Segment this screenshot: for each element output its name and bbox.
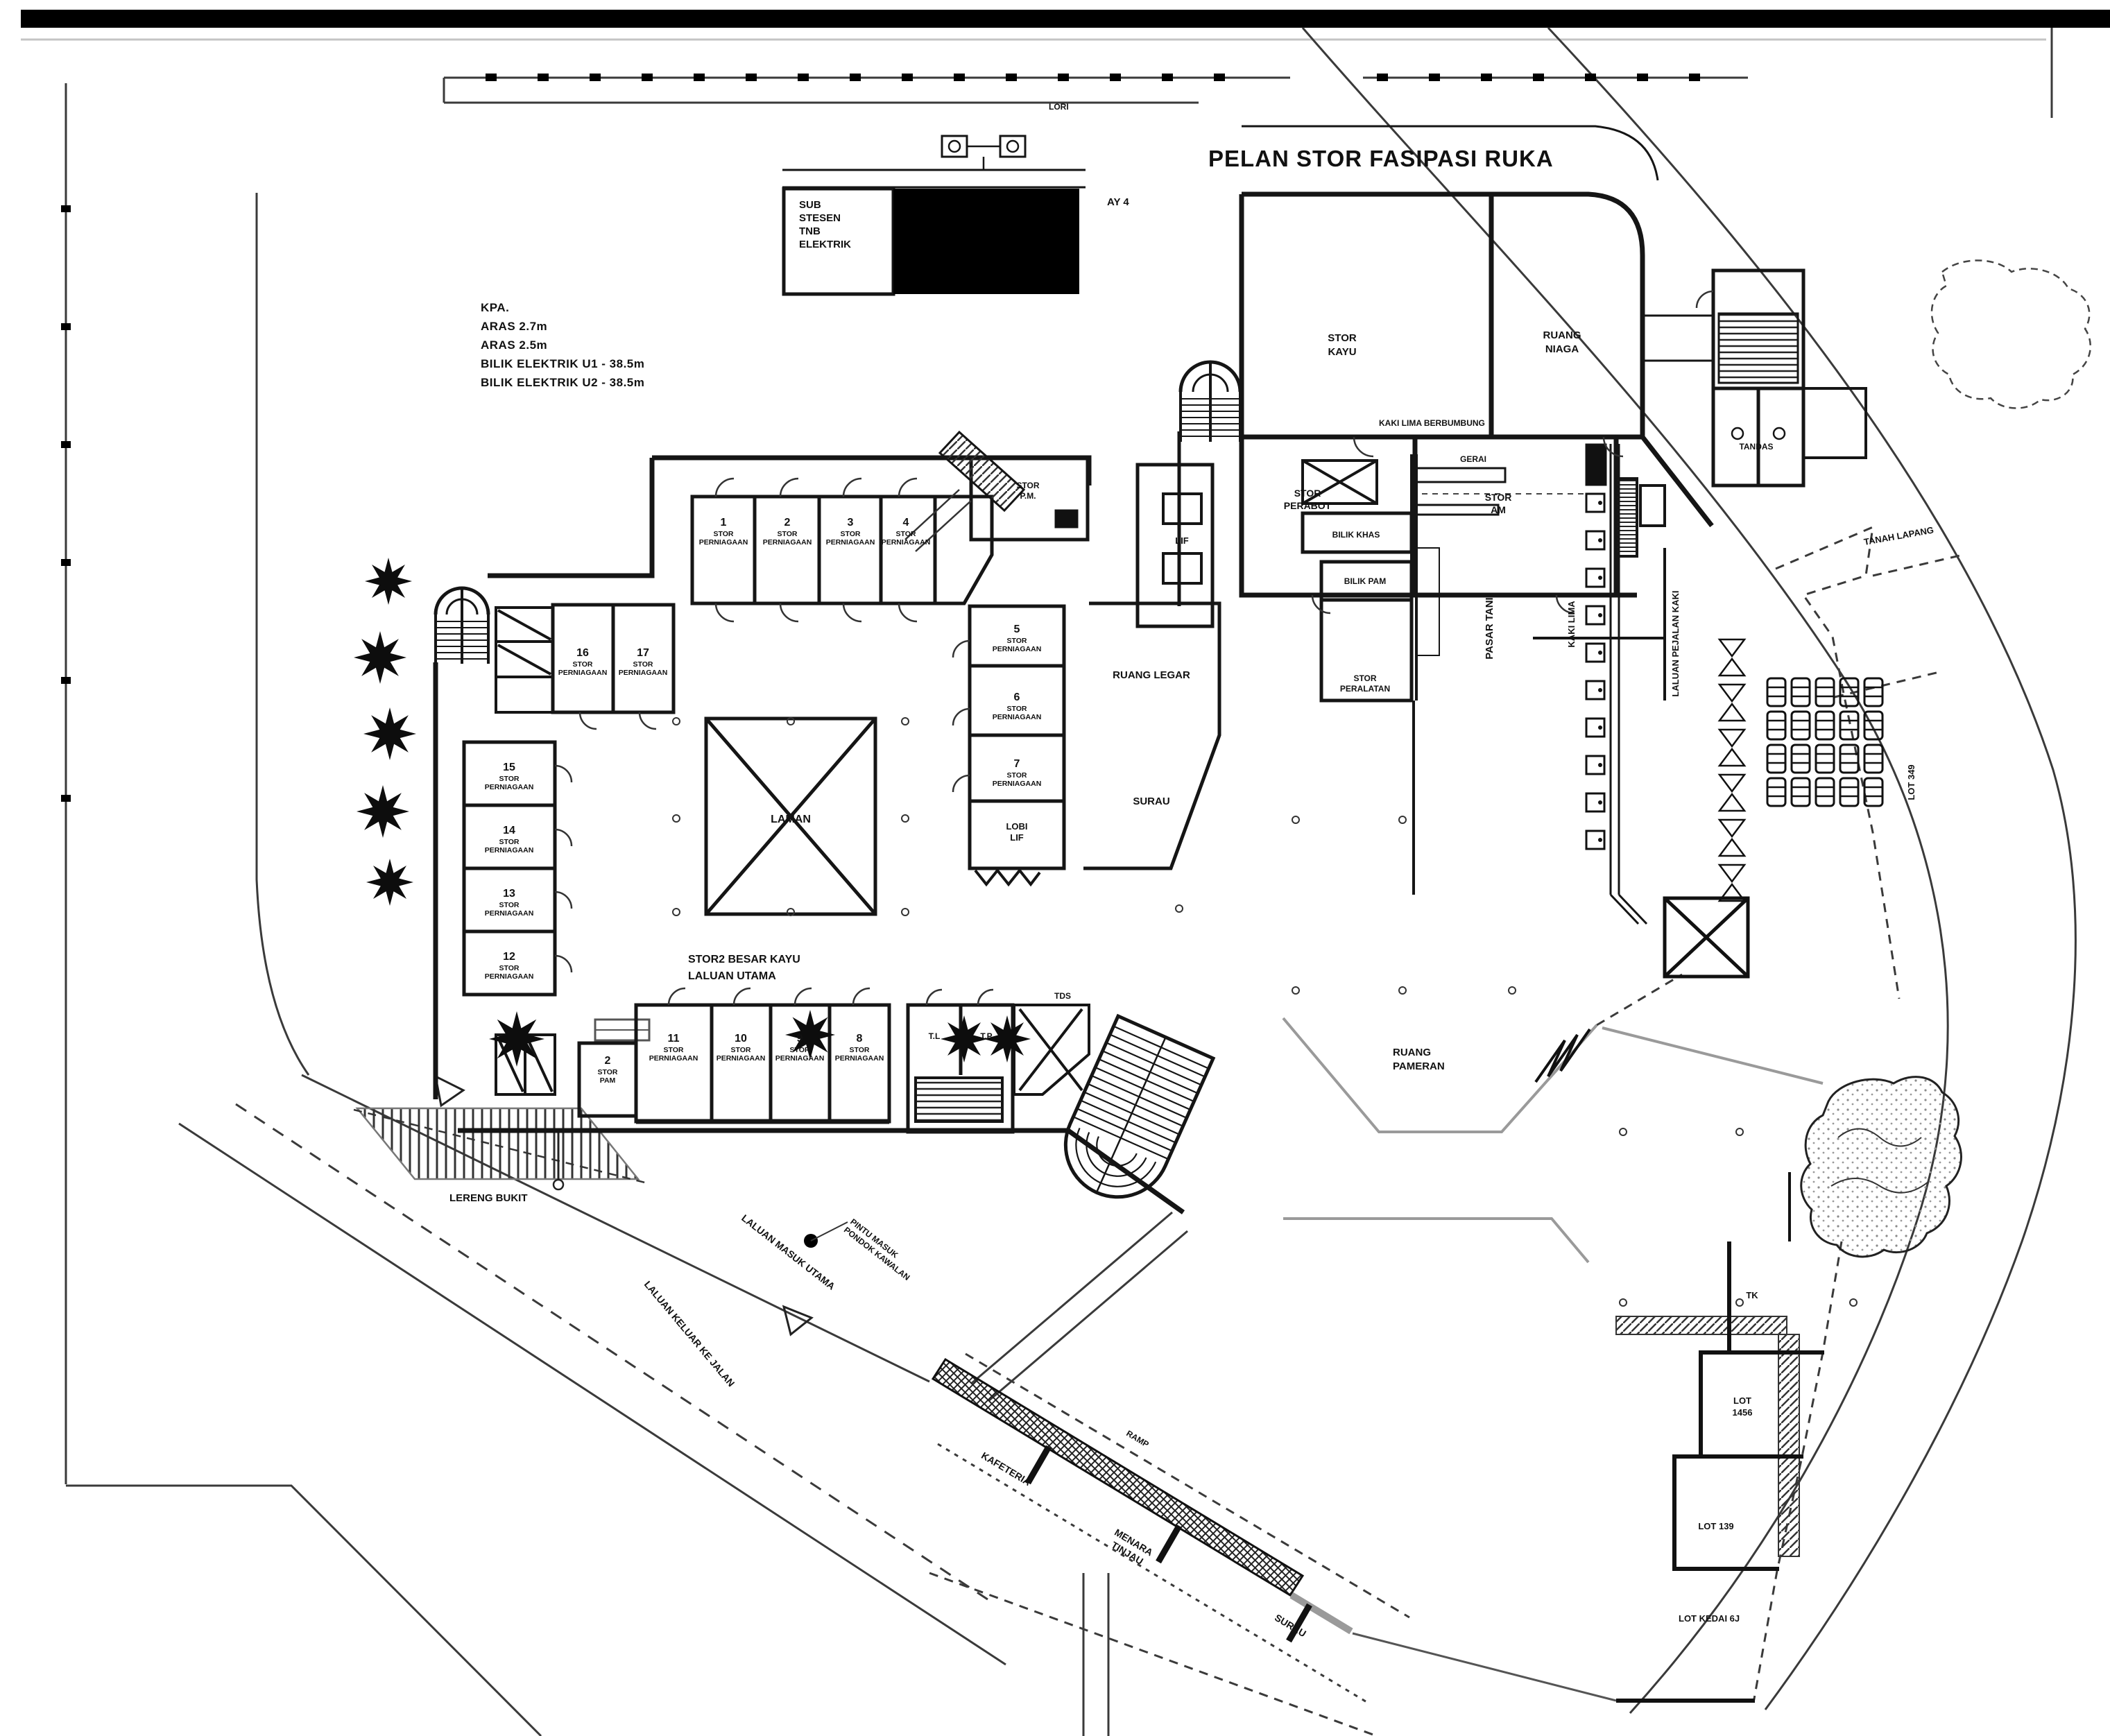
top-canopy-lines [444, 78, 1748, 103]
walkway-to-shops [971, 1212, 1187, 1401]
room-label-2: STORPAM [598, 1068, 618, 1085]
x-tree [1719, 820, 1744, 856]
legend-line: KPA. [481, 298, 644, 317]
stor-peralatan-label: STORPERALATAN [1340, 673, 1390, 694]
room-label-17: STORPERNIAGAAN [619, 660, 668, 677]
x-tree [1719, 775, 1744, 811]
counter-1 [1416, 468, 1505, 482]
column-dots [673, 718, 1857, 1306]
column-dot [1509, 987, 1516, 994]
picnic-table [1864, 745, 1882, 773]
picnic-table [1767, 678, 1785, 706]
room-number-2: 2 [605, 1055, 611, 1067]
room-number-6: 6 [1014, 691, 1020, 703]
room-label-1: STORPERNIAGAAN [699, 530, 748, 547]
ruang-pameran-label: RUANGPAMERAN [1393, 1047, 1445, 1072]
right-building [1242, 126, 1866, 924]
shops-strip [933, 1359, 1310, 1641]
column-dot [1292, 987, 1299, 994]
column-dot [673, 815, 680, 822]
lobi-lif-label: LOBILIF [1006, 821, 1027, 843]
link-ramp [905, 432, 1024, 551]
column-dot [1850, 1299, 1857, 1306]
column-dot [1399, 816, 1406, 823]
room-label-7: STORPERNIAGAAN [993, 771, 1042, 788]
room-label-16: STORPERNIAGAAN [558, 660, 608, 677]
picnic-table [1792, 712, 1810, 739]
picnic-table [1792, 778, 1810, 806]
room-number-3: 3 [848, 517, 854, 528]
substation-label: SUBSTESENTNBELEKTRIK [799, 199, 851, 250]
shops-hatched-band [933, 1359, 1303, 1595]
plaza-link [1602, 1028, 1823, 1083]
room-label-2: STORPERNIAGAAN [763, 530, 812, 547]
palm-tree [365, 558, 412, 605]
toilet-stair [916, 1078, 1002, 1121]
left-building-outer-walls [436, 458, 1183, 1212]
column-dot [902, 718, 909, 725]
room-number-2: 2 [784, 517, 791, 528]
curved-road-outer [1548, 28, 2075, 1710]
stor-am-label: STORAM [1485, 492, 1512, 515]
column-dot [902, 909, 909, 916]
picnic-table [1816, 745, 1834, 773]
surau-hall-label: SURAU [1133, 796, 1169, 807]
lif-label: LIF [1175, 535, 1189, 546]
laluan-masuk-label: LALUAN MASUK UTAMA [739, 1212, 837, 1292]
column-dot [1399, 987, 1406, 994]
shops-lower-dotted [938, 1444, 1368, 1703]
bottom-walk-lines [1083, 1573, 1108, 1736]
top-row-rooms [692, 497, 935, 603]
column-dot [1292, 816, 1299, 823]
legend-line: BILIK ELEKTRIK U1 - 38.5m [481, 354, 644, 373]
room-label-10: STORPERNIAGAAN [717, 1046, 766, 1063]
walk-link-line [1353, 1633, 1616, 1701]
garden-bed [1801, 1077, 1962, 1257]
lot-139-label: LOT 139 [1698, 1521, 1733, 1531]
duct-box [1640, 485, 1665, 526]
path-to-pavilion [1597, 974, 1682, 1025]
stor-pm-label: STORP.M. [1016, 481, 1039, 501]
room-number-5: 5 [1014, 624, 1020, 635]
room-label-13: STORPERNIAGAAN [485, 901, 534, 918]
room-number-7: 7 [1014, 758, 1020, 770]
picnic-table [1864, 678, 1882, 706]
small-cells-top [496, 608, 553, 712]
legend-notes: KPA.ARAS 2.7mARAS 2.5mBILIK ELEKTRIK U1 … [481, 298, 644, 392]
room-number-11: 11 [668, 1033, 680, 1045]
room-label-9: STORPERNIAGAAN [775, 1046, 825, 1063]
palm-tree [363, 707, 416, 760]
central-note: STOR2 BESAR KAYULALUAN UTAMA [688, 954, 800, 982]
door-arcs [555, 291, 1713, 1005]
tandas-l-label: T.L [929, 1031, 941, 1041]
tk-label: TK [1746, 1290, 1758, 1300]
picnic-table-grid [1767, 678, 1882, 806]
plaza-edge-lower [1283, 1219, 1588, 1262]
legend-line: ARAS 2.5m [481, 336, 644, 354]
tds-label: TDS [1054, 991, 1071, 1001]
lamp-post [554, 1180, 563, 1189]
zigzag-joint [975, 870, 1040, 884]
room-number-17: 17 [637, 647, 649, 659]
room-label-15: STORPERNIAGAAN [485, 775, 534, 791]
inner-line [1416, 548, 1439, 655]
picnic-table [1792, 745, 1810, 773]
x-tree [1719, 685, 1744, 721]
break-zigzag [1536, 1029, 1590, 1082]
x-tree [1719, 730, 1744, 766]
lot-kedai-label: LOT KEDAI 6J [1679, 1613, 1740, 1624]
boundary-offshoots [1835, 555, 1963, 697]
lereng-bukit-label: LERENG BUKIT [449, 1192, 528, 1204]
column-dot [1736, 1128, 1743, 1135]
pm-closet [1055, 510, 1078, 528]
market-stalls [1586, 494, 1604, 849]
room-label-12: STORPERNIAGAAN [485, 964, 534, 981]
picnic-table [1767, 745, 1785, 773]
room-number-9: 9 [797, 1033, 803, 1045]
menara-tinjau-label: MENARATINJAU [1106, 1527, 1155, 1569]
right-building-walls [1242, 194, 1712, 595]
rooms-16-17 [553, 605, 674, 712]
slope-area [354, 1108, 645, 1183]
room-label-3: STORPERNIAGAAN [826, 530, 875, 547]
arch-stair-left [436, 588, 488, 664]
top-black-bar [21, 10, 2110, 28]
lot-349-label: LOT 349 [1906, 764, 1916, 800]
legend-line: BILIK ELEKTRIK U2 - 38.5m [481, 373, 644, 392]
picnic-table [1767, 712, 1785, 739]
column-dot [673, 718, 680, 725]
column-dot [902, 815, 909, 822]
tandas-p-label: T.P [980, 1031, 992, 1041]
kaki-lima-v-label: KAKI LIMA [1566, 601, 1577, 648]
room-number-4: 4 [903, 517, 909, 528]
column-dot [1736, 1299, 1743, 1306]
bottom-row-rooms [636, 1005, 889, 1121]
gate-note: PINTU MASUKPONDOK KAWALAN [842, 1217, 918, 1282]
x-tree-column [1719, 639, 1744, 901]
left-road-inner-edge [257, 193, 309, 1075]
picnic-table [1792, 678, 1810, 706]
corridor-lines [1642, 316, 1713, 361]
room-number-13: 13 [503, 888, 515, 900]
pond-outline [1932, 260, 2091, 408]
substation-black-box [893, 189, 1079, 294]
laluan-keluar-label: LALUAN KELUAR KE JALAN [642, 1279, 737, 1389]
room-label-14: STORPERNIAGAAN [485, 838, 534, 854]
stall-head-block [1586, 444, 1606, 485]
level-marker: AY 4 [1107, 196, 1129, 208]
ruang-niaga-label: RUANGNIAGA [1543, 329, 1581, 355]
stair-treads [1719, 313, 1798, 383]
lot-1456-label: LOT1456 [1733, 1395, 1753, 1418]
room-label-11: STORPERNIAGAAN [649, 1046, 698, 1063]
fan-stair [1049, 1016, 1213, 1214]
stor-kayu-label: STORKAYU [1328, 332, 1357, 358]
room-number-8: 8 [857, 1033, 863, 1045]
laman-label: LAMAN [771, 814, 811, 825]
column-dot [1620, 1299, 1627, 1306]
palm-tree [366, 859, 413, 906]
room-label-5: STORPERNIAGAAN [993, 637, 1042, 653]
room-label-6: STORPERNIAGAAN [993, 705, 1042, 721]
pavilion [1665, 898, 1748, 977]
picnic-table [1840, 778, 1858, 806]
kaki-lima-note: KAKI LIMA BERBUMBUNG [1379, 418, 1485, 428]
tanah-lapang-label: TANAH LAPANG [1863, 524, 1935, 547]
left-building [436, 431, 1219, 1212]
column-dot [673, 909, 680, 916]
lori-label: LORI [1049, 102, 1069, 112]
gerai-note: GERAI [1460, 454, 1486, 464]
tandas-right-label: TANDAS [1739, 442, 1773, 452]
room-number-10: 10 [735, 1033, 747, 1045]
arch-stair-entrance [1181, 362, 1240, 442]
direction-triangle-2 [784, 1307, 812, 1334]
corner-room [935, 497, 992, 603]
room-number-1: 1 [721, 517, 727, 528]
legend-line: ARAS 2.7m [481, 317, 644, 336]
plan-title: PELAN STOR FASIPASI RUKA [1208, 146, 1554, 172]
lift-car-1 [1163, 494, 1201, 524]
x-tree [1719, 639, 1744, 676]
room-number-15: 15 [503, 762, 515, 773]
x-tree [1719, 865, 1744, 901]
palm-tree [354, 631, 406, 684]
room-label-8: STORPERNIAGAAN [835, 1046, 884, 1063]
room-number-16: 16 [576, 647, 589, 659]
picnic-table [1816, 678, 1834, 706]
bilik-pam-label: BILIK PAM [1344, 576, 1386, 586]
pasar-tani-label: PASAR TANI [1484, 597, 1495, 659]
laluan-pejalan-label: LALUAN PEJALAN KAKI [1670, 590, 1681, 696]
column-dot [1176, 905, 1183, 912]
counter-2 [1416, 505, 1498, 515]
ramp-dashed-line [966, 1354, 1409, 1617]
shops-outer-dashed [929, 1573, 1377, 1736]
palm-tree [489, 1011, 544, 1067]
picnic-table [1816, 712, 1834, 739]
kafeteria-label: KAFETERIA [979, 1450, 1033, 1488]
ruang-legar-label: RUANG LEGAR [1113, 669, 1190, 681]
palm-tree [357, 785, 409, 838]
room-number-14: 14 [503, 825, 515, 836]
ramp-label: RAMP [1124, 1428, 1151, 1449]
site-plan-drawing: SUBSTESENTNBELEKTRIKAY 4LORILAMANSTOR2 B… [0, 0, 2110, 1736]
picnic-table [1816, 778, 1834, 806]
lower-left-road [66, 1486, 541, 1736]
site-frame [21, 10, 2110, 40]
direction-triangle-1 [436, 1076, 463, 1106]
corner-exit-room [1014, 1005, 1089, 1094]
picnic-table [1767, 778, 1785, 806]
room-number-12: 12 [503, 951, 515, 963]
room-label-4: STORPERNIAGAAN [882, 530, 931, 547]
column-dot [1620, 1128, 1627, 1135]
shop-dividers [1028, 1447, 1310, 1641]
curved-road-inner [1303, 28, 1948, 1713]
bilik-khas-label: BILIK KHAS [1332, 530, 1380, 540]
lift-car-2 [1163, 553, 1201, 583]
